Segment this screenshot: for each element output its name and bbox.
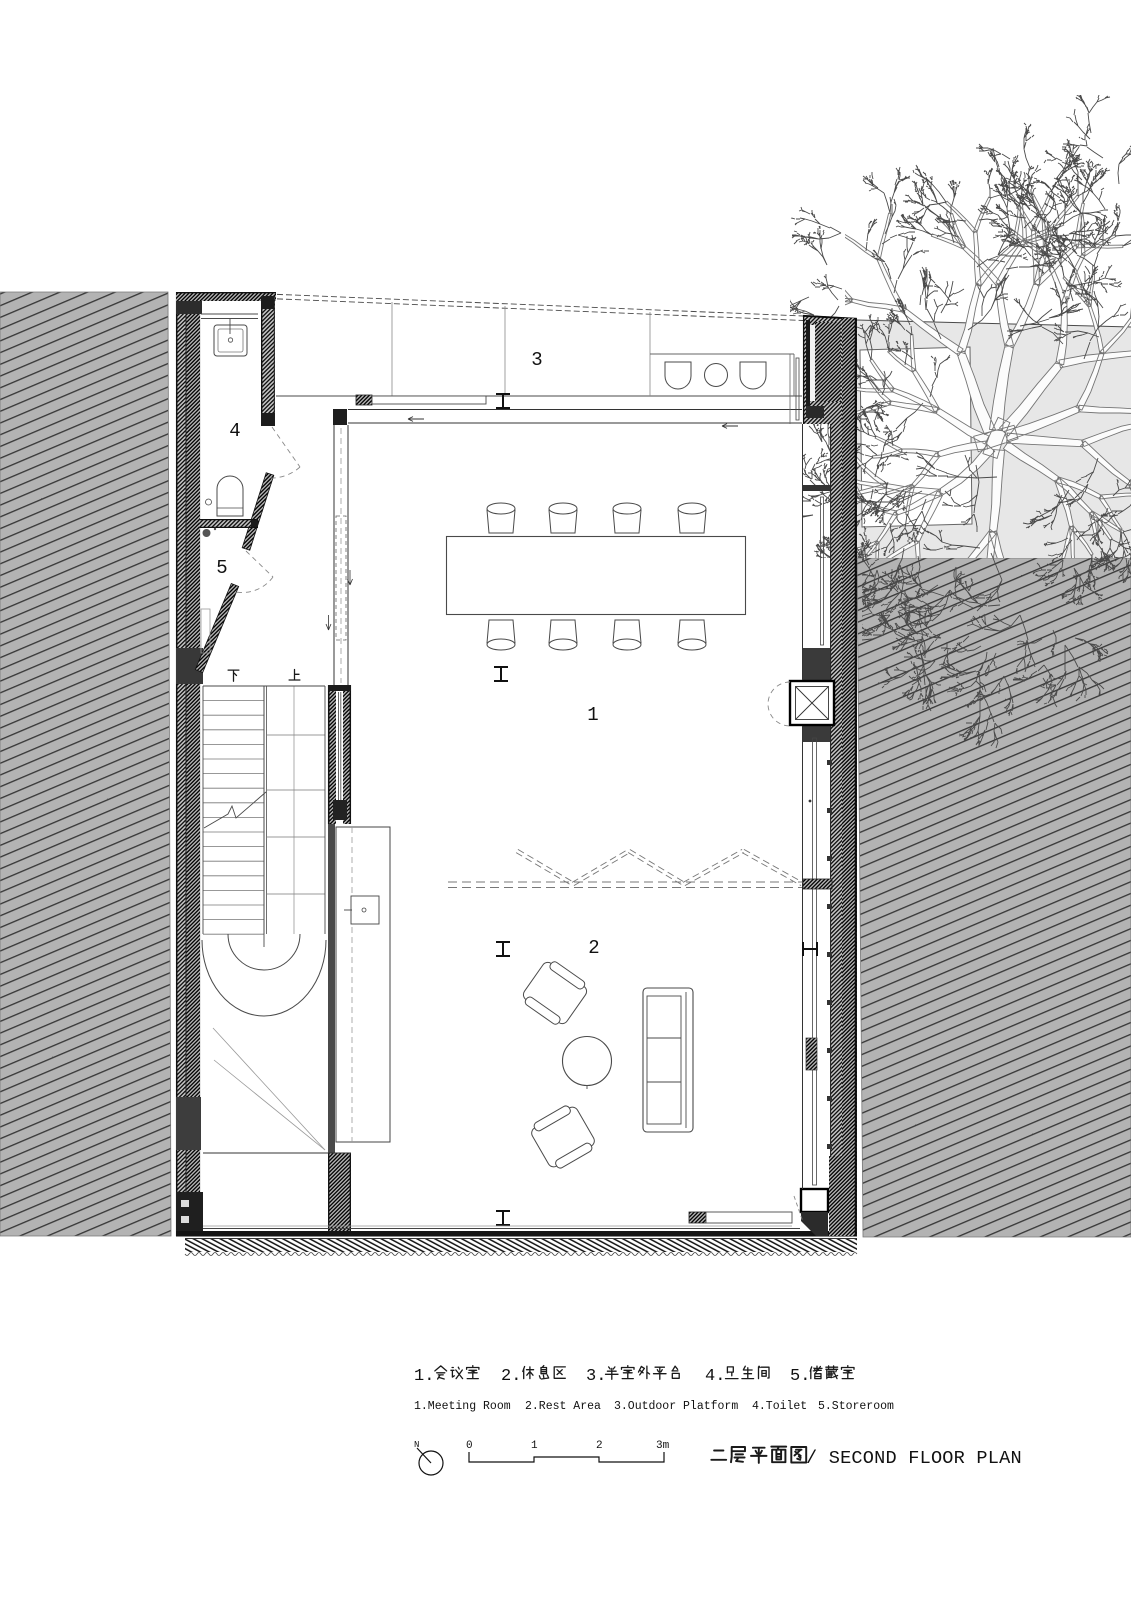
svg-text:3: 3 <box>531 349 542 371</box>
svg-text:3.: 3. <box>586 1367 606 1386</box>
svg-text:4: 4 <box>229 420 240 442</box>
svg-text:2: 2 <box>588 937 599 959</box>
svg-text:3m: 3m <box>656 1440 670 1452</box>
svg-text:1.: 1. <box>414 1367 434 1386</box>
svg-text:2: 2 <box>596 1440 603 1452</box>
svg-text:5: 5 <box>216 557 227 579</box>
svg-text:1: 1 <box>587 704 598 726</box>
svg-text:/ SECOND FLOOR PLAN: / SECOND FLOOR PLAN <box>806 1448 1022 1469</box>
svg-text:1: 1 <box>531 1440 538 1452</box>
svg-text:2.Rest Area: 2.Rest Area <box>525 1400 601 1413</box>
svg-text:4.: 4. <box>705 1367 725 1386</box>
svg-text:3.Outdoor Platform: 3.Outdoor Platform <box>614 1400 738 1413</box>
svg-text:2.: 2. <box>501 1367 521 1386</box>
svg-text:5.Storeroom: 5.Storeroom <box>818 1400 894 1413</box>
svg-text:1.Meeting Room: 1.Meeting Room <box>414 1400 511 1413</box>
svg-text:0: 0 <box>466 1440 473 1452</box>
svg-text:5.: 5. <box>790 1367 810 1386</box>
svg-text:4.Toilet: 4.Toilet <box>752 1400 807 1413</box>
svg-text:N: N <box>414 1440 419 1450</box>
